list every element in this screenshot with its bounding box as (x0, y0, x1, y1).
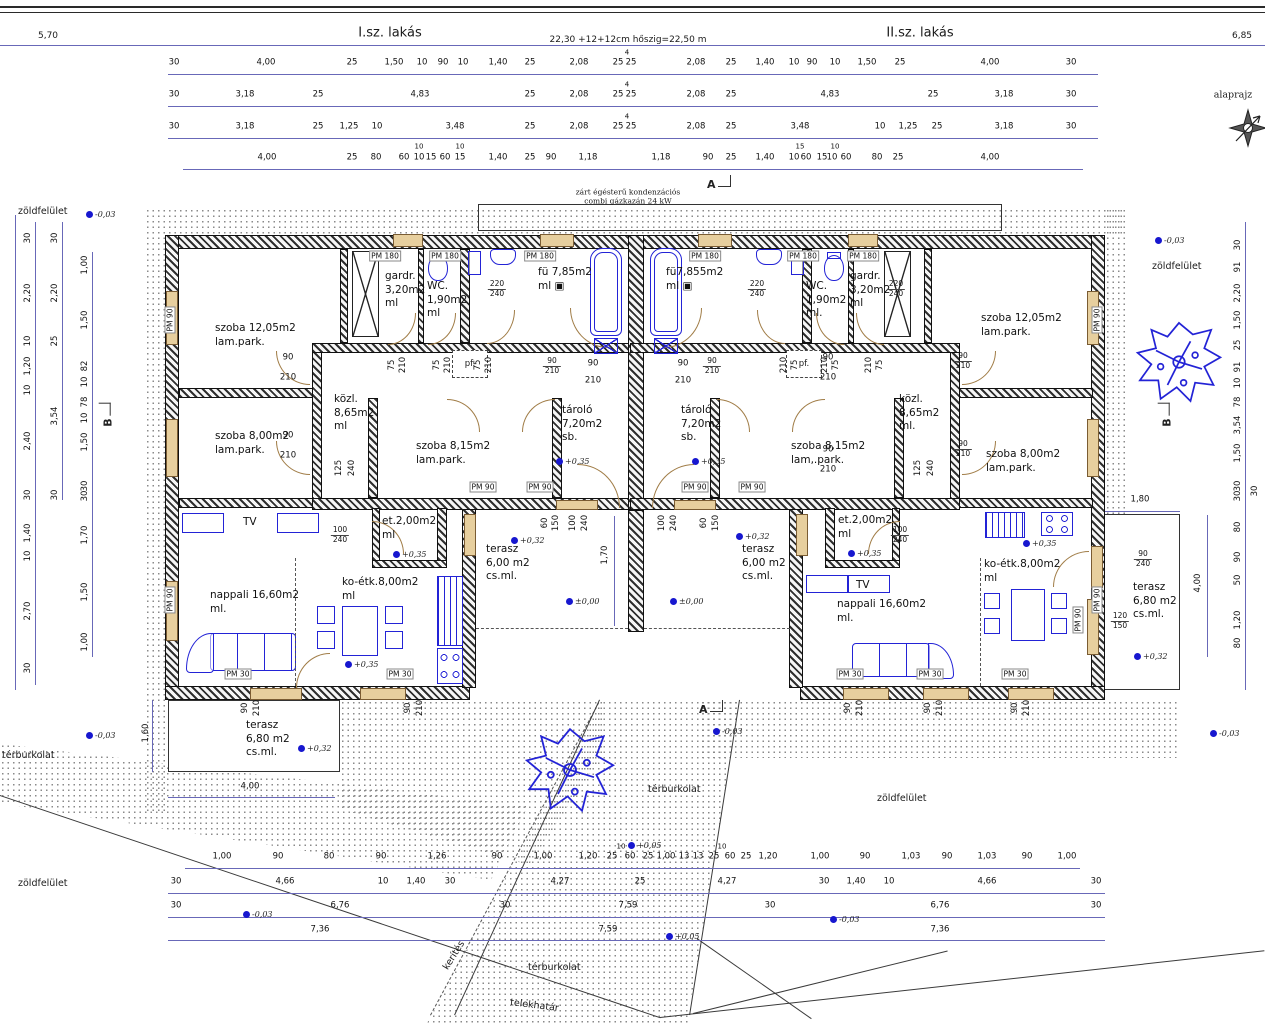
dimension-pair: 90240 (1134, 550, 1152, 568)
opening-tag: PM 30 (917, 669, 944, 680)
dimension-value-vertical: 1,50 (1233, 311, 1243, 330)
opening-tag: PM 90 (470, 482, 497, 493)
room-label: et.2,00m2 ml (838, 514, 892, 541)
dimension-value: 30 (500, 901, 511, 911)
elevation-value: +0,32 (307, 744, 332, 753)
wall-segment (312, 343, 322, 508)
dimension-value: 210 (675, 376, 691, 386)
section-mark: B (1161, 418, 1174, 426)
dimension-value: 90 (546, 153, 557, 163)
dimension-value: 4,66 (978, 877, 997, 887)
dimension-value-vertical: 210 (855, 700, 865, 716)
window-opening (250, 688, 302, 700)
dimension-value: 25 (726, 122, 737, 132)
dimension-value-vertical: 60 (540, 518, 550, 529)
fixture (806, 575, 848, 593)
opening-tag: PM 180 (429, 251, 461, 262)
site-boundary-line (693, 951, 948, 1014)
elevation-dot (666, 933, 673, 940)
dimension-line (1207, 515, 1208, 657)
dimension-value-vertical: 100 (568, 515, 578, 531)
elevation-value: -0,03 (252, 910, 273, 919)
opening-tag: PM 90 (165, 307, 176, 334)
dimension-value-vertical: 210 (864, 357, 874, 373)
elevation-marker: +0,32 (298, 744, 332, 753)
dimension-value: 90 (942, 852, 953, 862)
dimension-value: 4,27 (718, 877, 737, 887)
dimension-value: 210 (280, 451, 296, 461)
elevation-marker: +0,32 (511, 536, 545, 545)
wall-segment (628, 510, 644, 632)
dimension-value-vertical: 1,70 (80, 526, 90, 545)
opening-tag: PM 90 (1092, 307, 1103, 334)
room-label: nappali 16,60m2 ml. (837, 598, 926, 625)
dimension-value-vertical: 80 (1233, 522, 1243, 533)
dimension-value: 1,26 (428, 852, 447, 862)
dimension-line (35, 222, 36, 685)
dimension-value: 30 (1066, 58, 1077, 68)
dimension-value: 30 (1091, 901, 1102, 911)
dimension-value-vertical: 90 (1233, 552, 1243, 563)
dimension-line (185, 868, 1080, 869)
dimension-value-vertical: 240 (669, 515, 679, 531)
fixture (594, 338, 618, 354)
dimension-line (614, 516, 615, 626)
dimension-value: 1,25 (899, 122, 918, 132)
dimension-value-vertical: 75 (831, 360, 841, 371)
dimension-line (168, 893, 1105, 894)
dimension-value: 30 (1091, 877, 1102, 887)
opening-tag: PM 90 (739, 482, 766, 493)
dimension-value-vertical: 30 (1233, 491, 1243, 502)
dimension-line (15, 215, 16, 690)
dimension-value-vertical: 1,00 (80, 633, 90, 652)
fixture (590, 248, 622, 336)
dimension-value: 90 (438, 58, 449, 68)
dimension-pair: 90210 (543, 357, 561, 375)
elevation-value: -0,03 (1219, 729, 1240, 738)
dimension-value: 15 (426, 153, 437, 163)
dimension-value-vertical: 3,54 (50, 407, 60, 426)
dimension-value: 25 (313, 90, 324, 100)
elevation-value: -0,03 (722, 727, 743, 736)
elevation-dot (692, 458, 699, 465)
opening-tag: PM 90 (1073, 607, 1084, 634)
dimension-value: 4 (625, 81, 629, 89)
room-label: szoba 8,15m2 lam.park. (416, 440, 490, 467)
dimension-value: 3,18 (995, 122, 1014, 132)
room-label: tároló 7,20m2 sb. (562, 404, 602, 445)
elevation-dot (1023, 540, 1030, 547)
dimension-value-vertical: 90 (1010, 703, 1020, 714)
dimension-value: 1,03 (902, 852, 921, 862)
dimension-value: 25 (928, 90, 939, 100)
wall-segment (340, 249, 348, 343)
dimension-value-vertical: 30 (1250, 486, 1260, 497)
elevation-marker: +0,05 (666, 932, 700, 941)
dimension-value-vertical: 25 (1233, 340, 1243, 351)
dimension-value: 1,00 (213, 852, 232, 862)
dimension-value: 3,18 (236, 122, 255, 132)
dimension-value: 90 (588, 359, 599, 369)
elevation-value: +0,05 (675, 932, 700, 941)
dimension-value: 60 (725, 852, 736, 862)
fixture (984, 593, 1000, 609)
dimension-value-vertical: 1,00 (80, 256, 90, 275)
dimension-value: 25 (613, 58, 624, 68)
annotation-label: 22,30 +12+12cm hőszig=22,50 m (550, 35, 707, 45)
annotation-label: zöldfelület (18, 878, 68, 889)
dimension-value: 25 (726, 90, 737, 100)
dimension-pair: 100240 (891, 526, 909, 544)
dimension-value: 2,08 (687, 90, 706, 100)
wall-segment (165, 686, 470, 700)
fixture (317, 606, 335, 624)
dimension-value: 30 (169, 122, 180, 132)
dimension-value: 10 (831, 143, 840, 151)
dimension-value: 90 (376, 852, 387, 862)
dimension-line (152, 700, 153, 772)
dimension-value: 90 (273, 852, 284, 862)
annotation-label: alaprajz (1214, 90, 1253, 101)
dimension-value-vertical: 4,00 (1193, 574, 1203, 593)
tree-icon (1133, 316, 1225, 408)
dimension-value-vertical: 90 (923, 703, 933, 714)
elevation-marker: +0,35 (393, 550, 427, 559)
dimension-value-vertical: 30 (23, 490, 33, 501)
elevation-dot (86, 211, 93, 218)
dimension-pair: 120150 (1111, 612, 1129, 630)
opening-tag: PM 180 (847, 251, 879, 262)
dimension-pair: 100240 (331, 526, 349, 544)
dimension-value: 25 (643, 852, 654, 862)
elevation-value: -0,03 (95, 210, 116, 219)
section-mark: B (102, 418, 115, 426)
dimension-value-vertical: 30 (50, 490, 60, 501)
dimension-value: 1,40 (489, 58, 508, 68)
elevation-marker: +0,35 (345, 660, 379, 669)
gravel-hatch-area (1105, 208, 1125, 517)
dimension-value: 25 (525, 58, 536, 68)
dimension-value: 210 (280, 373, 296, 383)
room-label: WC. 1,90m2 ml. (806, 280, 846, 321)
elevation-marker: -0,03 (830, 915, 860, 924)
elevation-value: +0,35 (701, 457, 726, 466)
opening-tag: PM 30 (225, 669, 252, 680)
dimension-value: 2,08 (687, 58, 706, 68)
dimension-value: 90 (860, 852, 871, 862)
wall-segment (825, 508, 835, 568)
dimension-value: 210 (820, 373, 836, 383)
room-label: gardr. 3,20m2 ml (850, 270, 890, 311)
fixture (1041, 512, 1073, 536)
dimension-value-vertical: 1,60 (141, 724, 151, 743)
dimension-value: 60 (399, 153, 410, 163)
dimension-value: 1,40 (407, 877, 426, 887)
dimension-value-vertical: 91 (1233, 362, 1243, 373)
dimension-value: 60 (440, 153, 451, 163)
dimension-value: 1,20 (759, 852, 778, 862)
dimension-value: 90 (283, 431, 294, 441)
dimension-value-vertical: 1,50 (80, 311, 90, 330)
dimension-value: 10 (415, 143, 424, 151)
elevation-marker: ±0,00 (566, 597, 600, 606)
elevation-dot (86, 732, 93, 739)
dimension-value: 7,36 (931, 925, 950, 935)
dimension-value: 25 (347, 58, 358, 68)
opening-tag: PM 90 (527, 482, 554, 493)
dimension-value: 1,40 (847, 877, 866, 887)
border-rule (0, 12, 1265, 13)
dimension-value: 10 (378, 877, 389, 887)
fixture (824, 255, 844, 281)
window-opening (360, 688, 406, 700)
dimension-value: 10 (417, 58, 428, 68)
fixture (985, 512, 1025, 538)
dimension-value-vertical: 30 (1233, 240, 1243, 251)
dimension-value: 1,00 (534, 852, 553, 862)
room-label: fü 7,85m2 ml ▣ (538, 266, 592, 293)
elevation-value: +0,32 (745, 532, 770, 541)
floor-plan-canvas: szoba 12,05m2 lam.park.szoba 8,00m2 lam.… (0, 0, 1265, 1024)
dimension-value-vertical: 90 (843, 703, 853, 714)
dimension-value: 4,83 (821, 90, 840, 100)
dimension-line (1245, 222, 1246, 690)
elevation-marker: +0,35 (1023, 539, 1057, 548)
dimension-value: 10 (789, 58, 800, 68)
dimension-value-vertical: 75 (473, 360, 483, 371)
section-mark: A (699, 703, 708, 716)
fixture (490, 249, 516, 265)
dimension-value-vertical: 210 (415, 700, 425, 716)
dimension-value: 60 (625, 852, 636, 862)
dimension-value: 7,36 (311, 925, 330, 935)
dimension-value: 1,25 (340, 122, 359, 132)
window-opening (796, 514, 808, 556)
dimension-value: 6,76 (931, 901, 950, 911)
fixture (277, 513, 319, 533)
dimension-value-vertical: 75 (432, 360, 442, 371)
dimension-value: 80 (324, 852, 335, 862)
dimension-value: 10 (789, 153, 800, 163)
dimension-value-vertical: 2,20 (50, 284, 60, 303)
dimension-line (168, 106, 1098, 107)
annotation-label: térburkolat (528, 962, 581, 973)
elevation-marker: -0,03 (86, 731, 116, 740)
dimension-value: 1,50 (385, 58, 404, 68)
border-rule (0, 6, 1265, 8)
dimension-value: 1,80 (1131, 495, 1150, 505)
annotation-label: 5,70 (38, 31, 58, 41)
dimension-value-vertical: 1,40 (23, 524, 33, 543)
dimension-value-vertical: 75 (387, 360, 397, 371)
dimension-value: 13 (693, 852, 704, 862)
elevation-value: ±0,00 (679, 597, 704, 606)
elevation-dot (298, 745, 305, 752)
dimension-value-vertical: 1,50 (1233, 444, 1243, 463)
dimension-value-vertical: 1,50 (80, 433, 90, 452)
dimension-value-vertical: 78 (80, 397, 90, 408)
window-opening (540, 234, 574, 247)
elevation-value: +0,35 (1032, 539, 1057, 548)
annotation-label: I.sz. lakás (358, 26, 421, 41)
elevation-dot (556, 458, 563, 465)
dimension-value-vertical: 80 (1233, 638, 1243, 649)
dimension-value: 1,18 (579, 153, 598, 163)
room-label: gardr. 3,20m2 ml (385, 270, 425, 311)
dimension-value: 4,00 (981, 58, 1000, 68)
dimension-value: 25 (932, 122, 943, 132)
dimension-value-vertical: 82 (80, 361, 90, 372)
opening-tag: PM 180 (689, 251, 721, 262)
dimension-value-vertical: 10 (80, 413, 90, 424)
dimension-value: 3,48 (791, 122, 810, 132)
dimension-value: 10 (456, 143, 465, 151)
elevation-marker: +0,05 (628, 841, 662, 850)
opening-tag: PM 180 (787, 251, 819, 262)
dimension-value: 25 (607, 852, 618, 862)
dimension-value-vertical: 1,20 (23, 357, 33, 376)
fixture (468, 251, 481, 275)
dimension-pair: 220240 (748, 280, 766, 298)
dimension-value-vertical: 210 (252, 700, 262, 716)
dimension-value: 3,18 (236, 90, 255, 100)
dimension-value-vertical: 150 (551, 515, 561, 531)
dimension-value: 30 (1066, 122, 1077, 132)
elevation-dot (1155, 237, 1162, 244)
dimension-value-vertical: 210 (484, 357, 494, 373)
elevation-dot (345, 661, 352, 668)
room-label: közl. 8,65m2 ml. (899, 393, 939, 434)
room-label: szoba 8,00m2 lam.park. (986, 448, 1060, 475)
dimension-value: 6,76 (331, 901, 350, 911)
opening-tag: PM 180 (524, 251, 556, 262)
dimension-value: 90 (703, 153, 714, 163)
dimension-line (168, 917, 1105, 918)
dimension-value: 4,66 (276, 877, 295, 887)
dimension-value-vertical: 1,50 (80, 583, 90, 602)
window-opening (1008, 688, 1054, 700)
opening-tag: PM 180 (369, 251, 401, 262)
room-label: nappali 16,60m2 ml. (210, 589, 299, 616)
dimension-value: 25 (525, 90, 536, 100)
room-label: ko-étk.8,00m2 ml (342, 576, 418, 603)
dimension-value: 30 (171, 877, 182, 887)
dashed-line-horizontal (476, 628, 628, 629)
room-label: szoba 12,05m2 lam.park. (981, 312, 1062, 339)
dimension-value: 10 (414, 153, 425, 163)
dimension-value: 1,03 (978, 852, 997, 862)
dimension-value-vertical: 2,20 (23, 284, 33, 303)
opening-tag: PM 90 (1092, 587, 1103, 614)
elevation-marker: ±0,00 (670, 597, 704, 606)
elevation-dot (670, 598, 677, 605)
dimension-value-vertical: 10 (23, 336, 33, 347)
dimension-value: 90 (678, 359, 689, 369)
elevation-value: +0,05 (637, 841, 662, 850)
dimension-value: 7,59 (619, 901, 638, 911)
fixture (210, 633, 296, 671)
elevation-dot (511, 537, 518, 544)
dimension-value: 25 (613, 90, 624, 100)
dimension-value: 4,00 (981, 153, 1000, 163)
room-label: szoba 12,05m2 lam.park. (215, 322, 296, 349)
elevation-value: -0,03 (1164, 236, 1185, 245)
room-label: fü7,855m2 ml ▣ (666, 266, 723, 293)
dimension-value: 60 (801, 153, 812, 163)
wall-segment (179, 498, 322, 508)
dimension-value: 90 (283, 353, 294, 363)
wall-segment (372, 560, 447, 568)
dimension-value: 25 (709, 852, 720, 862)
dimension-value-vertical: 2,20 (1233, 284, 1243, 303)
dimension-pair: 90210 (954, 352, 972, 370)
dimension-value: 10 (827, 153, 838, 163)
dimension-value: 25 (626, 90, 637, 100)
room-label: TV (856, 579, 870, 593)
fixture (654, 338, 678, 354)
elevation-dot (713, 728, 720, 735)
dimension-value: 13 (679, 852, 690, 862)
dimension-pair: 90210 (703, 357, 721, 375)
dimension-value: 60 (841, 153, 852, 163)
elevation-dot (566, 598, 573, 605)
dimension-value-vertical: 240 (580, 515, 590, 531)
dimension-value-vertical: 2,40 (23, 432, 33, 451)
dimension-value: 4 (625, 113, 629, 121)
dimension-value: 90 (823, 445, 834, 455)
window-opening (923, 688, 969, 700)
dimension-value: 10 (458, 58, 469, 68)
window-opening (1087, 419, 1099, 477)
room-label: terasz 6,80 m2 cs.ml. (1133, 581, 1177, 622)
tree-icon (522, 722, 618, 818)
elevation-marker: +0,35 (692, 457, 726, 466)
dimension-value: 2,08 (570, 90, 589, 100)
dimension-value: 2,08 (687, 122, 706, 132)
room-label: terasz 6,00 m2 cs.ml. (486, 543, 530, 584)
dimension-value-vertical: 240 (926, 460, 936, 476)
dashed-line-vertical (980, 558, 981, 686)
dimension-value-vertical: 210 (398, 357, 408, 373)
fixture (756, 249, 782, 265)
dimension-line (1105, 511, 1180, 512)
dimension-pair: 220240 (887, 280, 905, 298)
dimension-value: 1,40 (489, 153, 508, 163)
elevation-value: +0,35 (565, 457, 590, 466)
elevation-value: ±0,00 (575, 597, 600, 606)
wall-segment (628, 235, 644, 510)
fixture (385, 631, 403, 649)
dimension-value-vertical: 210 (820, 357, 830, 373)
dimension-value-vertical: 75 (875, 360, 885, 371)
fixture (1051, 593, 1067, 609)
elevation-value: +0,35 (402, 550, 427, 559)
dimension-value: 30 (445, 877, 456, 887)
dimension-value-vertical: 10 (23, 385, 33, 396)
dimension-value: 25 (613, 122, 624, 132)
opening-tag: PM 90 (682, 482, 709, 493)
dimension-value-vertical: 30 (50, 233, 60, 244)
dimension-value-vertical: 60 (699, 518, 709, 529)
annotation-label: II.sz. lakás (886, 26, 953, 41)
fixture (342, 606, 378, 656)
dimension-value: 80 (371, 153, 382, 163)
dimension-value: 2,08 (570, 122, 589, 132)
site-boundary-line (660, 950, 1264, 1018)
window-opening (698, 234, 732, 247)
wall-segment (437, 508, 447, 568)
